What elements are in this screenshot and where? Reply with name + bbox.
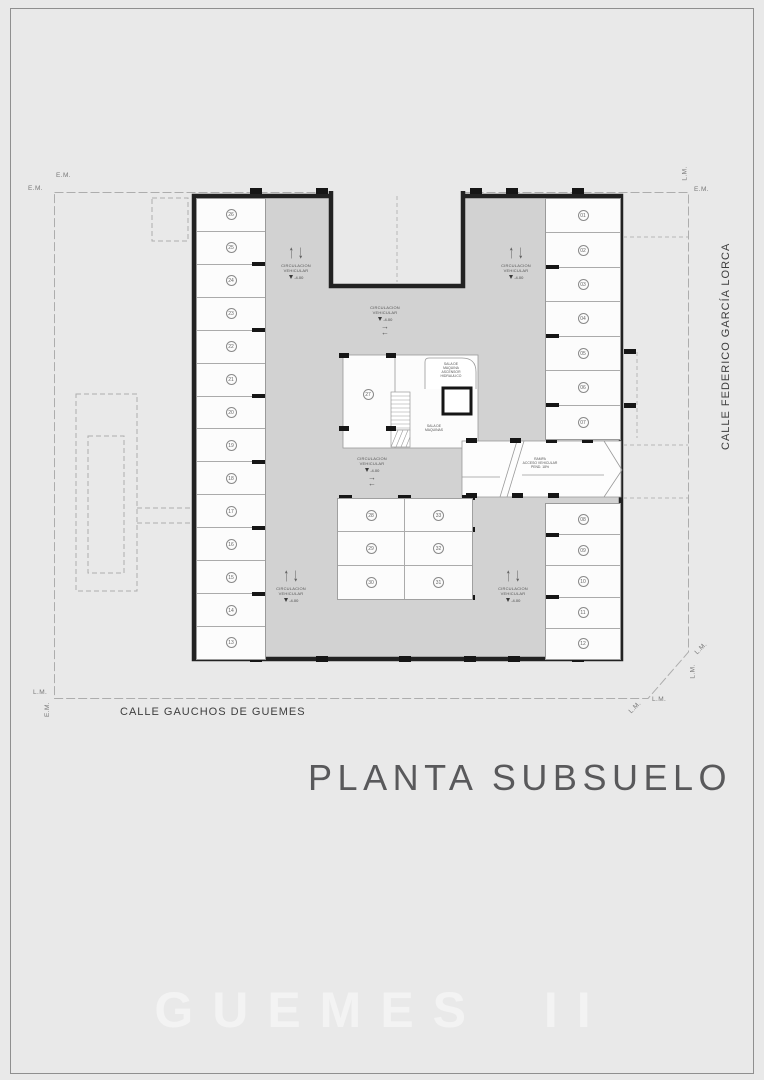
stall-number: 32	[433, 543, 444, 554]
stall-number: 25	[226, 242, 237, 253]
parking-stall-11: 11	[546, 597, 620, 628]
parking-stall-05: 05	[546, 336, 620, 370]
parking-stall-22: 22	[197, 330, 265, 363]
circulation-label: ↑↓ CIRCULACION VEHICULAR -4.00	[268, 247, 324, 280]
stall-number: 23	[226, 308, 237, 319]
parking-stall-29: 29	[338, 532, 405, 565]
parking-stall-07: 07	[546, 405, 620, 439]
column-mark	[252, 262, 265, 266]
parking-column-right-top: 01020304050607	[545, 198, 621, 440]
column-mark	[252, 394, 265, 398]
level-mark-icon	[378, 317, 382, 321]
parking-stall-04: 04	[546, 301, 620, 335]
circulation-label: ↑↓ CIRCULACION VEHICULAR -4.00	[485, 570, 541, 603]
stall-number: 01	[578, 210, 589, 221]
parking-stall-31: 31	[405, 566, 472, 599]
parking-stall-13: 13	[197, 626, 265, 659]
floorplan-sheet: 2625242322212019181716151413 01020304050…	[0, 0, 764, 1080]
stall-number: 31	[433, 577, 444, 588]
vehicle-flow-arrows-icon: ↑↓	[488, 243, 544, 263]
circulation-label: ↑↓ CIRCULACION VEHICULAR -4.00	[488, 247, 544, 280]
stall-number: 22	[226, 341, 237, 352]
column-mark	[546, 533, 559, 537]
parking-column-right-bottom: 0809101112	[545, 503, 621, 660]
boundary-label-lm: L.M.	[690, 664, 697, 678]
parking-stall-08: 08	[546, 504, 620, 534]
circulation-label: ↑↓ CIRCULACION VEHICULAR -4.00	[263, 570, 319, 603]
parking-stall-30: 30	[338, 566, 405, 599]
parking-stall-12: 12	[546, 628, 620, 659]
column-mark	[252, 460, 265, 464]
level-mark-icon	[509, 275, 513, 279]
parking-stall-21: 21	[197, 363, 265, 396]
stall-number: 02	[578, 245, 589, 256]
machine-room-label: SALA DE MAQUINAS	[414, 424, 454, 432]
stall-number: 13	[226, 637, 237, 648]
column-mark	[546, 334, 559, 338]
ramp-label: RAMPA ACCESO VEHICULAR PEND. 18%	[504, 457, 576, 469]
stall-number: 20	[226, 407, 237, 418]
stall-number: 30	[366, 577, 377, 588]
stall-number: 15	[226, 572, 237, 583]
stall-number: 05	[578, 348, 589, 359]
column-mark	[546, 403, 559, 407]
project-name: GUEMES II	[154, 981, 609, 1039]
parking-stall-09: 09	[546, 534, 620, 565]
stall-number: 29	[366, 543, 377, 554]
parking-column-left: 2625242322212019181716151413	[196, 198, 266, 660]
stall-number: 03	[578, 279, 589, 290]
stall-number: 18	[226, 473, 237, 484]
circulation-label: CIRCULACION VEHICULAR -4.00 →←	[344, 457, 400, 487]
parking-stall-01: 01	[546, 199, 620, 232]
stall-number: 21	[226, 374, 237, 385]
parking-stall-27: 27	[343, 358, 393, 430]
parking-stall-19: 19	[197, 428, 265, 461]
level-mark-icon	[289, 275, 293, 279]
parking-stall-20: 20	[197, 396, 265, 429]
parking-stall-18: 18	[197, 461, 265, 494]
stall-number: 19	[226, 440, 237, 451]
parking-stall-03: 03	[546, 267, 620, 301]
parking-stall-25: 25	[197, 231, 265, 264]
stall-number: 24	[226, 275, 237, 286]
boundary-label-em: E.M.	[56, 172, 71, 179]
parking-stall-10: 10	[546, 565, 620, 596]
elevator-machine-room-label: SALA DE MAQUINA ASCENSOR HIDRAULICO	[430, 362, 472, 378]
vehicle-flow-arrows-icon: →←	[344, 475, 400, 487]
plan-title: PLANTA SUBSUELO	[308, 757, 732, 799]
stall-number: 26	[226, 209, 237, 220]
boundary-label-lm: L.M.	[652, 696, 666, 703]
street-name-right: CALLE FEDERICO GARCÍA LORCA	[720, 250, 732, 450]
stall-number: 09	[578, 545, 589, 556]
column-mark	[546, 265, 559, 269]
boundary-label-em: E.M.	[44, 702, 51, 717]
stall-number: 12	[578, 638, 589, 649]
vehicle-flow-arrows-icon: ↑↓	[485, 566, 541, 586]
stall-number: 28	[366, 510, 377, 521]
parking-stall-14: 14	[197, 593, 265, 626]
parking-stall-23: 23	[197, 297, 265, 330]
stall-number: 06	[578, 382, 589, 393]
stall-number: 17	[226, 506, 237, 517]
parking-stall-06: 06	[546, 370, 620, 404]
street-name-bottom: CALLE GAUCHOS DE GUEMES	[120, 706, 306, 718]
stall-number: 16	[226, 539, 237, 550]
parking-stall-24: 24	[197, 264, 265, 297]
stall-number: 14	[226, 605, 237, 616]
parking-stall-26: 26	[197, 199, 265, 231]
parking-stall-16: 16	[197, 527, 265, 560]
stall-number: 10	[578, 576, 589, 587]
level-mark-icon	[284, 598, 288, 602]
level-mark-icon	[365, 468, 369, 472]
boundary-label-em: E.M.	[28, 185, 43, 192]
stall-number: 04	[578, 313, 589, 324]
stall-number: 07	[578, 417, 589, 428]
boundary-label-lm: L.M.	[682, 166, 689, 180]
stall-number: 27	[363, 389, 374, 400]
stall-number: 08	[578, 514, 589, 525]
parking-grid-center: 283329323031	[337, 498, 473, 600]
column-mark	[546, 595, 559, 599]
column-mark	[252, 328, 265, 332]
column-mark	[252, 526, 265, 530]
circulation-label: CIRCULACION VEHICULAR -4.00 →←	[357, 306, 413, 336]
parking-stall-32: 32	[405, 532, 472, 565]
parking-stall-17: 17	[197, 494, 265, 527]
level-mark-icon	[506, 598, 510, 602]
vehicle-flow-arrows-icon: →←	[357, 324, 413, 336]
vehicle-flow-arrows-icon: ↑↓	[268, 243, 324, 263]
stall-number: 33	[433, 510, 444, 521]
parking-stall-02: 02	[546, 232, 620, 266]
parking-stall-28: 28	[338, 499, 405, 532]
vehicle-flow-arrows-icon: ↑↓	[263, 566, 319, 586]
boundary-label-lm: L.M.	[33, 689, 47, 696]
boundary-label-em: E.M.	[694, 186, 709, 193]
stall-number: 11	[578, 607, 589, 618]
parking-stall-33: 33	[405, 499, 472, 532]
parking-stall-15: 15	[197, 560, 265, 593]
